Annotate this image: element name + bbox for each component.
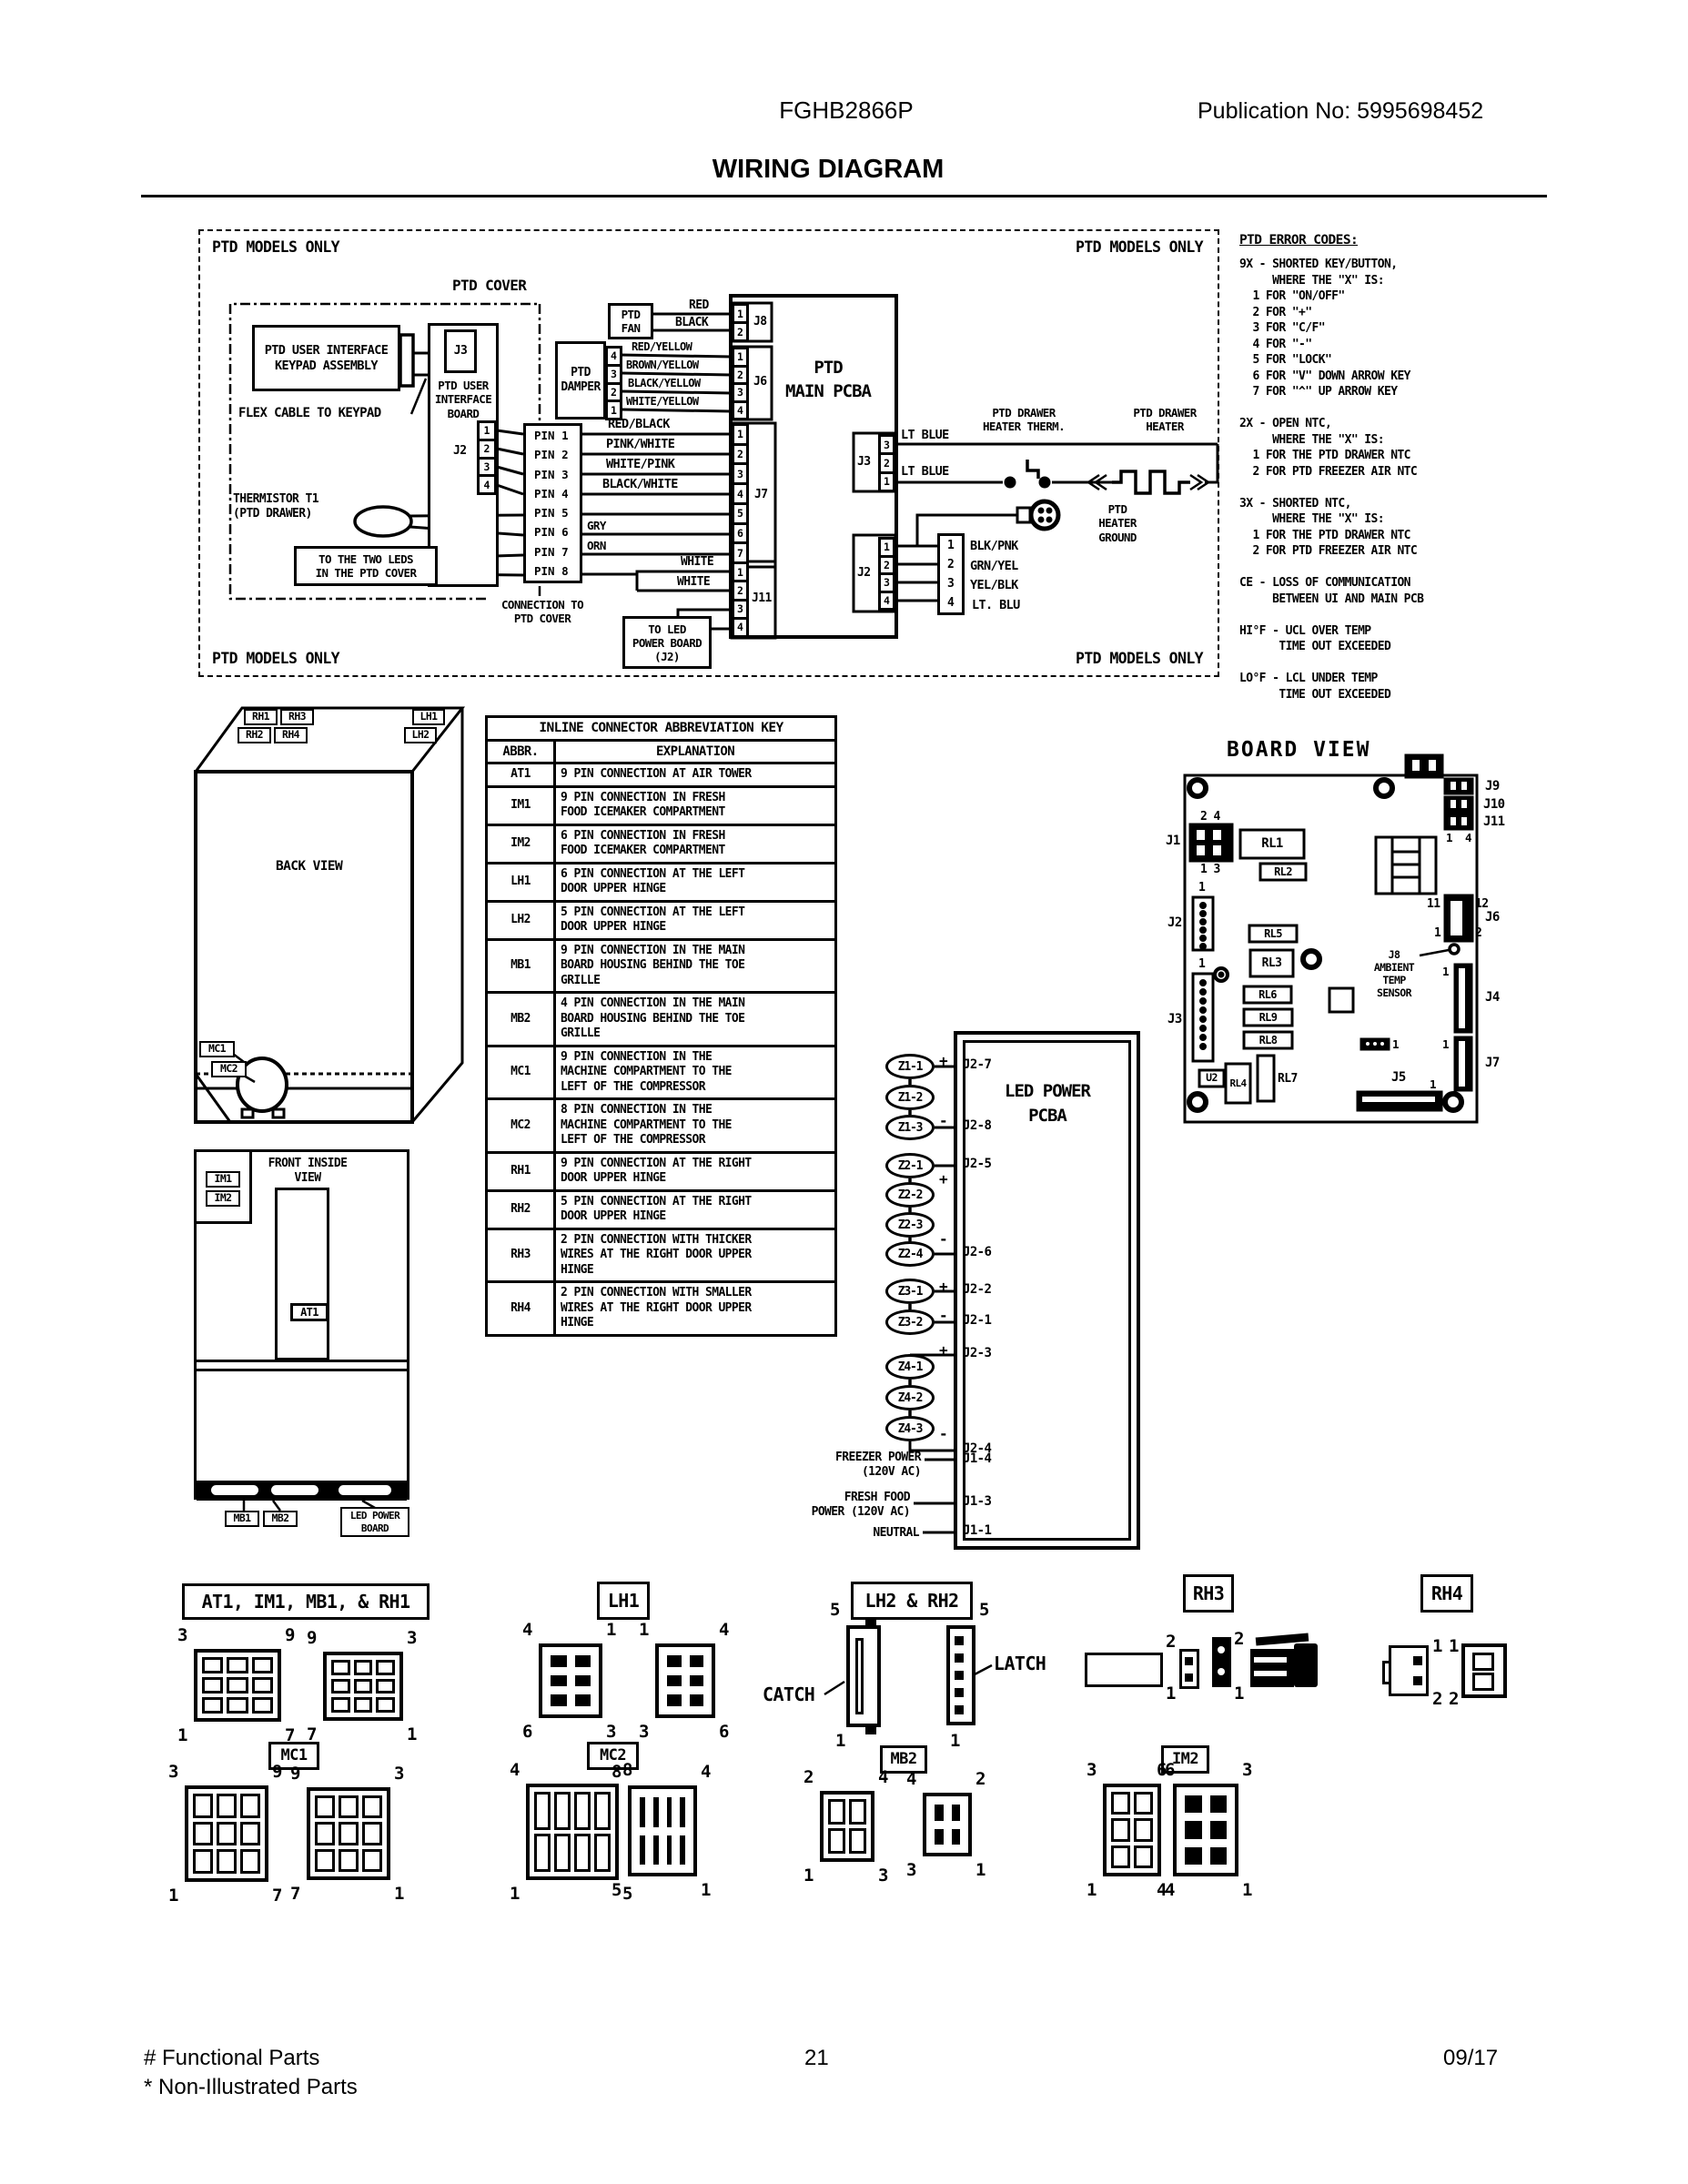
zone-connector-z1-1: Z1-1 (885, 1054, 935, 1079)
wire-orn: ORN (587, 539, 606, 552)
bv-j9: J9 (1485, 779, 1500, 794)
rh4-conn-b (1461, 1643, 1507, 1698)
abbr-table-row: RH25 PIN CONNECTION AT THE RIGHT DOOR UP… (487, 1190, 836, 1228)
zone-connector-z3-2: Z3-2 (885, 1309, 935, 1335)
abbr-cell: MB1 (487, 939, 555, 993)
connector-cavity (594, 1834, 611, 1872)
connector-pin-number: 1 (975, 1860, 986, 1880)
grille-slot (339, 1485, 391, 1495)
backview-lh1: LH1 (412, 709, 445, 725)
abbr-table-row: RH42 PIN CONNECTION WITH SMALLER WIRES A… (487, 1282, 836, 1336)
connector-pin-number: 1 (407, 1724, 417, 1744)
connector-pin-number: 1 (177, 1725, 187, 1745)
backview-lh2: LH2 (404, 727, 437, 743)
j8-label: J8 (753, 315, 766, 329)
connector-mc2-left (526, 1784, 619, 1880)
frontview-divider (194, 1360, 409, 1371)
connector-cavity (680, 1797, 685, 1827)
explanation-cell: 5 PIN CONNECTION AT THE RIGHT DOOR UPPER… (555, 1190, 836, 1228)
bv-j1-bottom: 1 3 (1200, 863, 1220, 877)
wire-white-2: WHITE (677, 575, 710, 590)
fresh-food-power-label: FRESH FOOD POWER (120V AC) (773, 1491, 910, 1520)
latch-pin (955, 1705, 964, 1714)
connector-cavity (574, 1792, 591, 1830)
frontview-at1: AT1 (290, 1303, 329, 1321)
connector-cavity (331, 1679, 350, 1694)
bv-rl3: RL3 (1250, 950, 1293, 976)
grille-slot (211, 1485, 258, 1495)
abbr-table-title: INLINE CONNECTOR ABBREVIATION KEY (487, 717, 836, 741)
wire-brown-yellow: BROWN/YELLOW (626, 359, 699, 372)
connector-pin-number: 1 (639, 1620, 649, 1640)
connector-pin-number: 3 (1242, 1760, 1252, 1780)
led-pcba-pin-j2-2: J2-2 (963, 1282, 991, 1298)
bv-rl8: RL8 (1244, 1032, 1292, 1048)
wire-white-yellow: WHITE/YELLOW (626, 395, 699, 409)
connector-cavity (935, 1805, 944, 1821)
pin-cell: 2 (732, 321, 749, 342)
explanation-cell: 9 PIN CONNECTION AT AIR TOWER (555, 763, 836, 787)
rh3-pin (1185, 1657, 1193, 1665)
lh2rh2-latch-connector (946, 1625, 975, 1725)
connector-cavity (574, 1834, 591, 1872)
rh3-a-1: 1 (1166, 1683, 1176, 1704)
led-pcba-pin-j1-1: J1-1 (963, 1523, 991, 1539)
connector-pin-number: 3 (878, 1865, 888, 1886)
abbr-table-row: MC28 PIN CONNECTION IN THE MACHINE COMPA… (487, 1099, 836, 1153)
connector-cavity (952, 1829, 961, 1845)
rh3-plug-body (1294, 1643, 1318, 1687)
footer-non-illustrated: * Non-Illustrated Parts (144, 2075, 358, 2100)
connector-cavity (217, 1849, 237, 1874)
pin-cell: 4 (732, 617, 749, 638)
connector-mc2-right (628, 1785, 697, 1876)
rh3-plug-stripe (1254, 1657, 1287, 1663)
connector-cavity (575, 1694, 591, 1706)
pinout-rh3-label: RH3 (1183, 1574, 1234, 1613)
connector-mc1-left (185, 1785, 268, 1882)
rh3-conn-a (1179, 1649, 1199, 1689)
bv-j3-pin1: 1 (1198, 957, 1205, 972)
connector-pin-number: 4 (719, 1620, 729, 1640)
pinout-lh1-label: LH1 (597, 1582, 650, 1620)
connector-cavity (362, 1822, 382, 1845)
connector-cavity (551, 1675, 567, 1687)
bv-j3: J3 (1167, 1012, 1182, 1027)
pin-cell: 4 (477, 474, 497, 495)
rh3-b-2: 2 (1234, 1629, 1244, 1649)
connector-cavity (354, 1660, 373, 1675)
polarity-sign: + (939, 1052, 948, 1069)
connector-cavity (1111, 1845, 1130, 1868)
error-codes-list: 9X - SHORTED KEY/BUTTON, WHERE THE "X" I… (1239, 257, 1540, 703)
pin-cell: PIN 4 (526, 484, 580, 503)
bv-rl1: RL1 (1240, 830, 1304, 858)
abbr-cell: MB2 (487, 993, 555, 1046)
polarity-sign: - (939, 1112, 948, 1129)
abbr-cell: MC2 (487, 1099, 555, 1153)
pinout-group1-label: AT1, IM1, MB1, & RH1 (182, 1583, 430, 1620)
zone-connector-z2-1: Z2-1 (885, 1153, 935, 1178)
connector-cavity (554, 1834, 571, 1872)
led-pcba-pin-j2-7: J2-7 (963, 1057, 991, 1073)
explanation-cell: 9 PIN CONNECTION IN THE MACHINE COMPARTM… (555, 1046, 836, 1099)
connector-pin-number: 7 (272, 1886, 282, 1906)
latch-pin (955, 1636, 964, 1645)
connector-cavity (1134, 1818, 1153, 1841)
connector-cavity (362, 1849, 382, 1872)
connector-cavity (193, 1822, 213, 1846)
heater-therm-label: PTD DRAWER HEATER THERM. (965, 406, 1083, 434)
connector-cavity (667, 1655, 682, 1667)
zone-connector-z2-4: Z2-4 (885, 1241, 935, 1267)
connector-cavity (354, 1697, 373, 1713)
connector-cavity (1134, 1845, 1153, 1868)
pinout-rh4-label: RH4 (1420, 1574, 1473, 1613)
zone-connector-z3-1: Z3-1 (885, 1279, 935, 1304)
pin-cell: 3 (940, 574, 962, 593)
connector-cavity (667, 1675, 682, 1687)
connector-pin-number: 7 (307, 1724, 317, 1744)
damper-pins: 4321 (605, 346, 622, 420)
latch-pin (955, 1671, 964, 1680)
catch-label: CATCH (763, 1683, 814, 1705)
main-pcba-label: PTD MAIN PCBA (764, 357, 892, 403)
connector-cavity (1210, 1847, 1228, 1865)
explanation-cell: 6 PIN CONNECTION IN FRESH FOOD ICEMAKER … (555, 824, 836, 863)
bv-j2: J2 (1167, 915, 1182, 931)
publication-number: Publication No: 5995698452 (1198, 98, 1483, 125)
heater-label: PTD DRAWER HEATER (1110, 406, 1219, 434)
connector-cavity (193, 1849, 213, 1874)
pin-block: PIN 1PIN 2PIN 3PIN 4PIN 5PIN 6PIN 7PIN 8 (523, 423, 582, 583)
bv-j7: J7 (1485, 1056, 1500, 1071)
rh3-conn-b (1212, 1637, 1231, 1687)
connector-pin-number: 3 (407, 1628, 417, 1648)
connector-lh1-right (655, 1643, 715, 1718)
backview-mc1: MC1 (199, 1041, 235, 1057)
bv-j11: J11 (1483, 814, 1505, 830)
rh4-pin (1413, 1676, 1422, 1685)
zone-connector-z1-3: Z1-3 (885, 1115, 935, 1140)
abbr-cell: LH1 (487, 863, 555, 901)
polarity-sign: - (939, 1230, 948, 1248)
j7-pins: 1234567 (732, 423, 749, 564)
j2-right-pins: 1234 (878, 537, 895, 611)
pin-cell: PIN 1 (526, 426, 580, 445)
connector-cavity (828, 1799, 845, 1825)
connector-cavity (1185, 1795, 1202, 1813)
lh2rh2-left-5: 5 (830, 1600, 840, 1620)
abbreviation-table: INLINE CONNECTOR ABBREVIATION KEY ABBR. … (485, 715, 837, 1337)
bv-j10: J10 (1483, 797, 1505, 813)
connector-cavity (690, 1694, 704, 1706)
abbr-cell: MC1 (487, 1046, 555, 1099)
connector-pin-number: 1 (394, 1884, 404, 1904)
frontview-im1: IM1 (206, 1171, 240, 1188)
connector-pin-number: 1 (804, 1865, 814, 1886)
connector-mc1-right (307, 1787, 390, 1880)
bv-j5: J5 (1391, 1070, 1406, 1086)
connector-im2-right (1173, 1784, 1238, 1876)
footer-page-number: 21 (804, 2046, 829, 2071)
model-number: FGHB2866P (746, 96, 946, 125)
led-pcba-pin-j2-3: J2-3 (963, 1346, 991, 1361)
connector-mb2-left (820, 1791, 874, 1862)
j8-pins: 12 (732, 303, 749, 342)
connector-cavity (376, 1679, 395, 1694)
pin-cell: PIN 7 (526, 542, 580, 561)
pin-cell: 1 (940, 536, 962, 555)
connector-cavity (202, 1677, 223, 1694)
connector-cavity (1210, 1795, 1228, 1813)
connector-cavity (575, 1655, 591, 1667)
connector-cavity (1185, 1847, 1202, 1865)
thermistor-label: THERMISTOR T1 (PTD DRAWER) (233, 492, 318, 521)
lh2rh2-right-1: 1 (950, 1731, 960, 1751)
connector-cavity (640, 1797, 645, 1827)
connector-cavity (653, 1797, 659, 1827)
connector-cavity (594, 1792, 611, 1830)
abbr-cell: IM2 (487, 824, 555, 863)
ui-board-label: PTD USER INTERFACE BOARD (426, 379, 500, 420)
connector-cavity (849, 1799, 866, 1825)
connector-cavity (217, 1794, 237, 1818)
abbr-table-row: RH32 PIN CONNECTION WITH THICKER WIRES A… (487, 1228, 836, 1282)
catch-slot (855, 1638, 864, 1714)
lh2rh2-right-5: 5 (979, 1600, 989, 1620)
explanation-cell: 6 PIN CONNECTION AT THE LEFT DOOR UPPER … (555, 863, 836, 901)
wire-blk-pnk: BLK/PNK (970, 539, 1018, 553)
connector-group1-left (194, 1649, 281, 1722)
pin-cell: PIN 6 (526, 522, 580, 541)
connector-cavity (1111, 1818, 1130, 1841)
rh3-plug (1250, 1649, 1294, 1687)
connector-pin-number: 1 (1087, 1880, 1097, 1900)
connection-to-cover-label: CONNECTION TO PTD COVER (488, 598, 597, 626)
rh3-blade (1085, 1653, 1163, 1687)
wire-lt-blu: LT. BLU (972, 598, 1020, 612)
pin-cell: 1 (605, 399, 622, 420)
wiring-diagram-page: FGHB2866P Publication No: 5995698452 WIR… (0, 0, 1688, 2184)
connector-cavity (331, 1660, 350, 1675)
latch-pin (955, 1688, 964, 1697)
connector-cavity (1134, 1792, 1153, 1815)
ptd-fan-box: PTD FAN (608, 303, 653, 339)
connector-cavity (1210, 1821, 1228, 1838)
abbr-cell: RH2 (487, 1190, 555, 1228)
rh4-a-2: 2 (1432, 1689, 1442, 1709)
j11-pins: 1234 (732, 561, 749, 638)
freezer-power-label: FREEZER POWER (120V AC) (801, 1451, 921, 1480)
led-pcba-pin-j2-1: J2-1 (963, 1313, 991, 1329)
boardview-title: BOARD VIEW (1227, 737, 1370, 763)
latch-pin (955, 1653, 964, 1663)
frontview-airtower (275, 1188, 329, 1360)
explanation-cell: 9 PIN CONNECTION IN THE MAIN BOARD HOUSI… (555, 939, 836, 993)
pin-cell: 4 (940, 593, 962, 612)
connector-cavity (667, 1835, 672, 1865)
pin-cell: 1 (878, 471, 895, 492)
inline-4pin-connector: 1234 (937, 533, 965, 615)
flex-cable-label: FLEX CABLE TO KEYPAD (238, 406, 381, 421)
connector-pin-number: 1 (510, 1884, 520, 1904)
connector-cavity (339, 1822, 359, 1845)
led-pcba-pin-j1-4: J1-4 (963, 1451, 991, 1467)
led-pcba-pin-j1-3: J1-3 (963, 1494, 991, 1510)
bv-rl7: RL7 (1278, 1072, 1298, 1087)
backview-rh2: RH2 (238, 727, 271, 743)
bv-j4: J4 (1485, 990, 1500, 1006)
pin-cell: 2 (940, 555, 962, 574)
rh4-b-2: 2 (1449, 1689, 1459, 1709)
connector-cavity (534, 1792, 551, 1830)
rh4-slot (1472, 1673, 1494, 1691)
ptd-cover-label: PTD COVER (452, 277, 526, 295)
explanation-cell: 9 PIN CONNECTION IN FRESH FOOD ICEMAKER … (555, 786, 836, 824)
connector-cavity (376, 1697, 395, 1713)
ptd-models-label-bl: PTD MODELS ONLY (212, 650, 339, 668)
wire-white-1: WHITE (681, 555, 713, 570)
pin-cell: PIN 2 (526, 445, 580, 464)
connector-pin-number: 3 (639, 1722, 649, 1742)
bv-rl2: RL2 (1260, 864, 1306, 880)
connector-pin-number: 6 (719, 1722, 729, 1742)
connector-pin-number: 4 (1157, 1880, 1167, 1900)
explanation-cell: 2 PIN CONNECTION WITH THICKER WIRES AT T… (555, 1228, 836, 1282)
pin-cell: 4 (732, 400, 749, 421)
ptd-models-box (198, 229, 1219, 677)
connector-pin-number: 3 (1087, 1760, 1097, 1780)
connector-pin-number: 1 (1242, 1880, 1252, 1900)
connector-cavity (339, 1795, 359, 1818)
connector-pin-number: 8 (622, 1760, 632, 1780)
connector-pin-number: 9 (285, 1625, 295, 1645)
connector-cavity (252, 1657, 273, 1673)
connector-pin-number: 1 (168, 1886, 178, 1906)
abbr-table-row: MC19 PIN CONNECTION IN THE MACHINE COMPA… (487, 1046, 836, 1099)
explanation-cell: 8 PIN CONNECTION IN THE MACHINE COMPARTM… (555, 1099, 836, 1153)
abbr-table-row: IM19 PIN CONNECTION IN FRESH FOOD ICEMAK… (487, 786, 836, 824)
connector-pin-number: 3 (168, 1762, 178, 1782)
connector-cavity (667, 1694, 682, 1706)
rh3-a-2: 2 (1166, 1632, 1176, 1652)
polarity-sign: + (939, 1170, 948, 1188)
connector-pin-number: 4 (701, 1762, 711, 1782)
j6-pins: 1234 (732, 347, 749, 420)
abbr-table-row: MB24 PIN CONNECTION IN THE MAIN BOARD HO… (487, 993, 836, 1046)
polarity-sign: - (939, 1425, 948, 1442)
connector-cavity (376, 1660, 395, 1675)
j11-label: J11 (752, 591, 772, 606)
bv-j1-top: 2 4 (1200, 810, 1220, 824)
wire-black-white: BLACK/WHITE (602, 477, 678, 491)
to-leds-box: TO THE TWO LEDS IN THE PTD COVER (294, 546, 438, 586)
bv-j6-2: 2 (1475, 926, 1481, 941)
abbr-cell: RH4 (487, 1282, 555, 1336)
connector-cavity (315, 1795, 335, 1818)
abbr-table-row: LH16 PIN CONNECTION AT THE LEFT DOOR UPP… (487, 863, 836, 901)
lt-blue-top: LT BLUE (901, 428, 949, 442)
rh3-slot (1218, 1668, 1225, 1675)
connector-cavity (202, 1657, 223, 1673)
rh4-slot (1472, 1653, 1494, 1671)
to-led-power-box: TO LED POWER BOARD (J2) (622, 616, 712, 669)
connector-pin-number: 3 (906, 1860, 916, 1880)
abbr-table-row: RH19 PIN CONNECTION AT THE RIGHT DOOR UP… (487, 1152, 836, 1190)
connector-pin-number: 4 (510, 1760, 520, 1780)
explanation-cell: 4 PIN CONNECTION IN THE MAIN BOARD HOUSI… (555, 993, 836, 1046)
bv-smallconn-pin1: 1 (1392, 1037, 1399, 1051)
connector-pin-number: 7 (290, 1884, 300, 1904)
frontview-mb2: MB2 (263, 1511, 298, 1527)
connector-pin-number: 4 (522, 1620, 532, 1640)
connector-cavity (849, 1828, 866, 1854)
connector-lh1-left (539, 1643, 602, 1718)
connector-cavity (354, 1679, 373, 1694)
connector-cavity (828, 1828, 845, 1854)
connector-cavity (690, 1675, 704, 1687)
connector-cavity (667, 1797, 672, 1827)
polarity-sign: + (939, 1341, 948, 1359)
connector-cavity (653, 1835, 659, 1865)
pin-cell: PIN 3 (526, 465, 580, 484)
rh4-a-1: 1 (1432, 1636, 1442, 1656)
connector-cavity (640, 1835, 645, 1865)
ptd-models-label-br: PTD MODELS ONLY (1076, 650, 1203, 668)
rh4-pin (1413, 1656, 1422, 1665)
connector-pin-number: 6 (522, 1722, 532, 1742)
bv-j6-11: 11 (1427, 897, 1440, 912)
bv-rl4: RL4 (1226, 1064, 1250, 1103)
connector-cavity (315, 1849, 335, 1872)
connector-cavity (240, 1849, 260, 1874)
connector-pin-number: 2 (804, 1767, 814, 1787)
zone-connector-z4-1: Z4-1 (885, 1354, 935, 1380)
frontview-grille (197, 1481, 407, 1501)
rh3-b-1: 1 (1234, 1683, 1244, 1704)
connector-cavity (217, 1822, 237, 1846)
ui-j2-pins: 1234 (477, 420, 497, 495)
bv-j6-1: 1 (1434, 926, 1440, 941)
ptd-models-label-tl: PTD MODELS ONLY (212, 238, 339, 257)
neutral-label: NEUTRAL (830, 1526, 919, 1541)
rh4-tab (1382, 1661, 1391, 1684)
frontview-led-power-board: LED POWER BOARD (340, 1507, 409, 1537)
connector-cavity (534, 1834, 551, 1872)
connector-pin-number: 8 (612, 1762, 622, 1782)
connector-cavity (554, 1792, 571, 1830)
abbr-col-header: ABBR. (487, 740, 555, 763)
wire-black-yellow: BLACK/YELLOW (628, 377, 701, 390)
j2-ui-label: J2 (453, 444, 466, 459)
connector-pin-number: 9 (290, 1764, 300, 1784)
j7-label: J7 (754, 488, 767, 502)
wire-white-pink: WHITE/PINK (606, 457, 674, 471)
bv-j11-pin4: 4 (1465, 831, 1471, 844)
polarity-sign: + (939, 1278, 948, 1295)
footer-functional-parts: # Functional Parts (144, 2046, 319, 2071)
lt-blue-bottom: LT BLUE (901, 464, 949, 479)
j3-right-pins: 321 (878, 434, 895, 492)
connector-cavity (252, 1697, 273, 1714)
connector-cavity (193, 1794, 213, 1818)
lh2rh2-catch-connector (846, 1625, 881, 1727)
backview-mc2: MC2 (211, 1061, 247, 1077)
abbr-cell: IM1 (487, 786, 555, 824)
error-codes-title: PTD ERROR CODES: (1239, 233, 1358, 249)
wire-pink-white: PINK/WHITE (606, 437, 674, 451)
